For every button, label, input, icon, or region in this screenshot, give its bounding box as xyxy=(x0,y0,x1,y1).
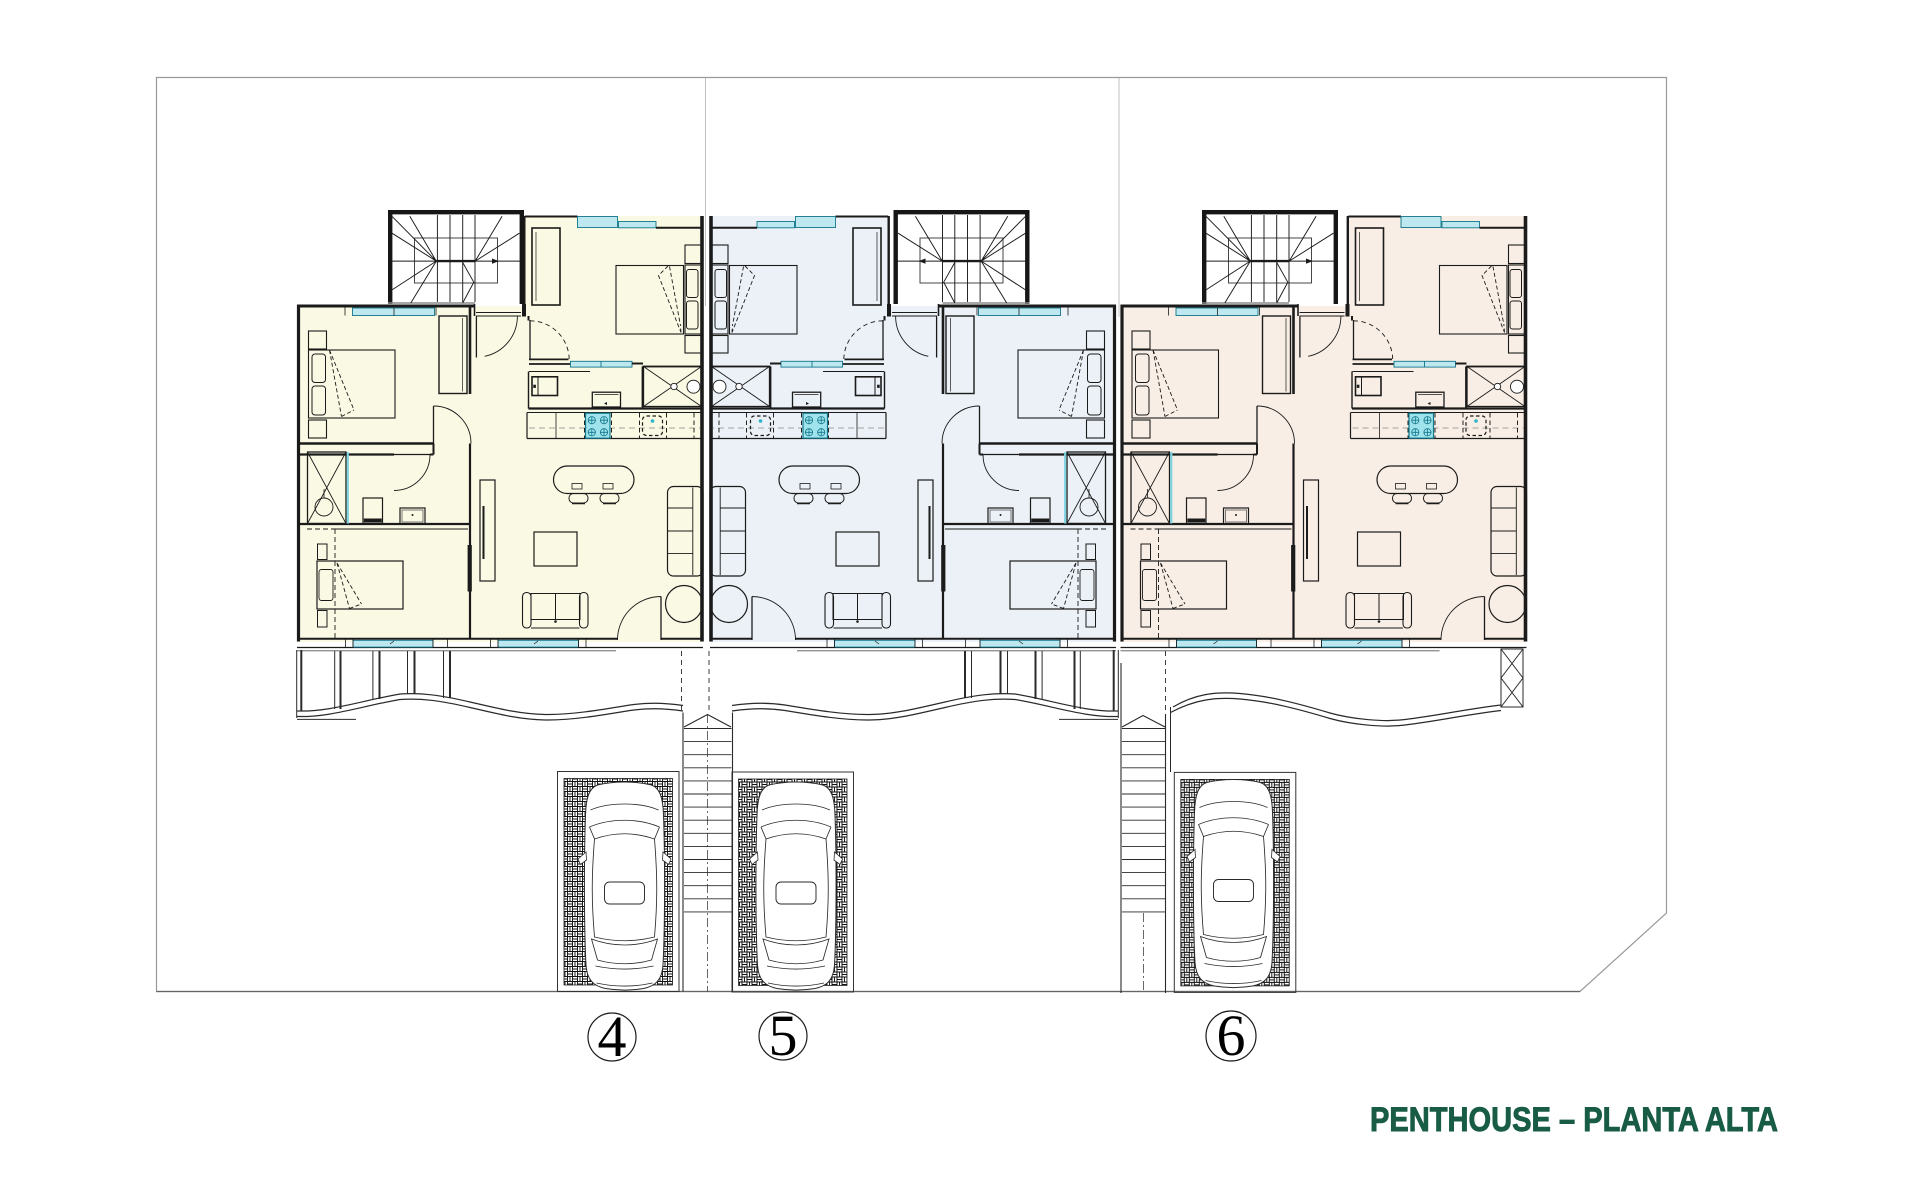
svg-text:6: 6 xyxy=(1217,1003,1246,1068)
svg-text:PENTHOUSE – PLANTA ALTA: PENTHOUSE – PLANTA ALTA xyxy=(1370,1101,1778,1139)
svg-text:4: 4 xyxy=(598,1004,627,1069)
svg-text:5: 5 xyxy=(769,1003,798,1068)
